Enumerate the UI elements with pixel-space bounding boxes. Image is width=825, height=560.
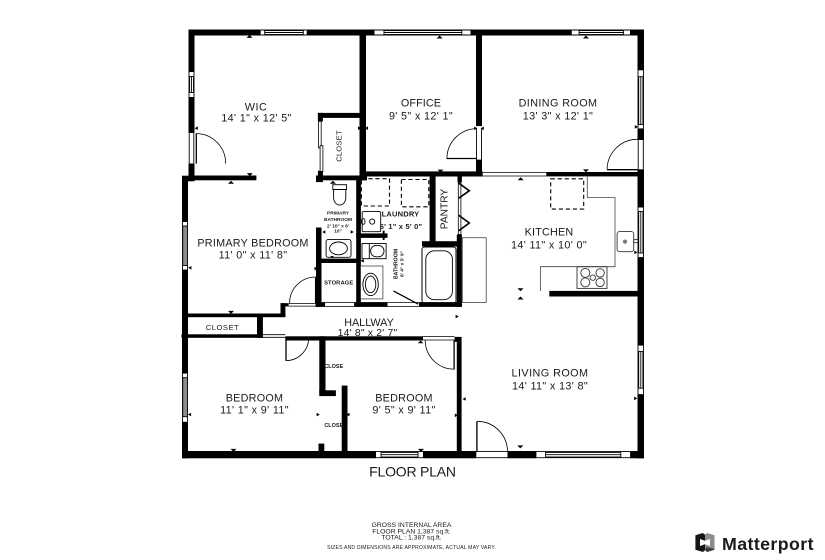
- svg-text:CLOSE: CLOSE: [324, 423, 343, 429]
- svg-text:10": 10": [334, 228, 342, 234]
- svg-text:SIZES AND DIMENSIONS ARE APPRO: SIZES AND DIMENSIONS ARE APPROXIMATE, AC…: [327, 545, 496, 551]
- svg-text:PRIMARY: PRIMARY: [327, 211, 350, 217]
- svg-text:BEDROOM: BEDROOM: [375, 393, 433, 405]
- svg-text:BEDROOM: BEDROOM: [226, 393, 284, 405]
- svg-text:9' 5" x 12' 1": 9' 5" x 12' 1": [389, 111, 453, 123]
- svg-text:PANTRY: PANTRY: [440, 189, 451, 230]
- svg-text:11' 1" x 9' 11": 11' 1" x 9' 11": [220, 405, 289, 417]
- svg-text:DINING ROOM: DINING ROOM: [519, 98, 598, 110]
- svg-text:STORAGE: STORAGE: [324, 280, 353, 286]
- svg-text:14' 8" x 2' 7": 14' 8" x 2' 7": [338, 328, 398, 339]
- svg-text:13' 3" x 12' 1": 13' 3" x 12' 1": [523, 111, 593, 123]
- svg-text:BATHROOM: BATHROOM: [394, 249, 400, 279]
- svg-text:KITCHEN: KITCHEN: [525, 227, 574, 239]
- svg-text:14' 11" x 10' 0": 14' 11" x 10' 0": [511, 240, 587, 252]
- svg-text:LIVING ROOM: LIVING ROOM: [512, 368, 589, 380]
- svg-text:TOTAL : 1,387 sq.ft.: TOTAL : 1,387 sq.ft.: [381, 535, 441, 542]
- svg-text:PRIMARY BEDROOM: PRIMARY BEDROOM: [197, 238, 308, 250]
- svg-text:CLOSET: CLOSET: [335, 130, 344, 162]
- svg-text:CLOSE: CLOSE: [324, 364, 343, 370]
- svg-text:OFFICE: OFFICE: [401, 98, 441, 110]
- svg-text:LAUNDRY: LAUNDRY: [382, 209, 420, 218]
- svg-text:FLOOR PLAN: FLOOR PLAN: [369, 463, 456, 479]
- svg-text:HALLWAY: HALLWAY: [344, 317, 394, 329]
- svg-text:6' 1" x 5' 0": 6' 1" x 5' 0": [380, 222, 423, 231]
- svg-text:14' 1" x 12' 5": 14' 1" x 12' 5": [221, 112, 291, 124]
- svg-text:14' 11" x 13' 8": 14' 11" x 13' 8": [512, 381, 588, 393]
- svg-text:8' 4" x 5' 9": 8' 4" x 5' 9": [399, 251, 405, 277]
- svg-text:11' 0" x 11' 8": 11' 0" x 11' 8": [219, 250, 288, 262]
- svg-text:CLOSET: CLOSET: [206, 323, 239, 332]
- svg-text:9' 5" x 9' 11": 9' 5" x 9' 11": [372, 405, 435, 417]
- svg-text:BATHROOM: BATHROOM: [324, 217, 352, 223]
- svg-text:Matterport: Matterport: [722, 534, 814, 554]
